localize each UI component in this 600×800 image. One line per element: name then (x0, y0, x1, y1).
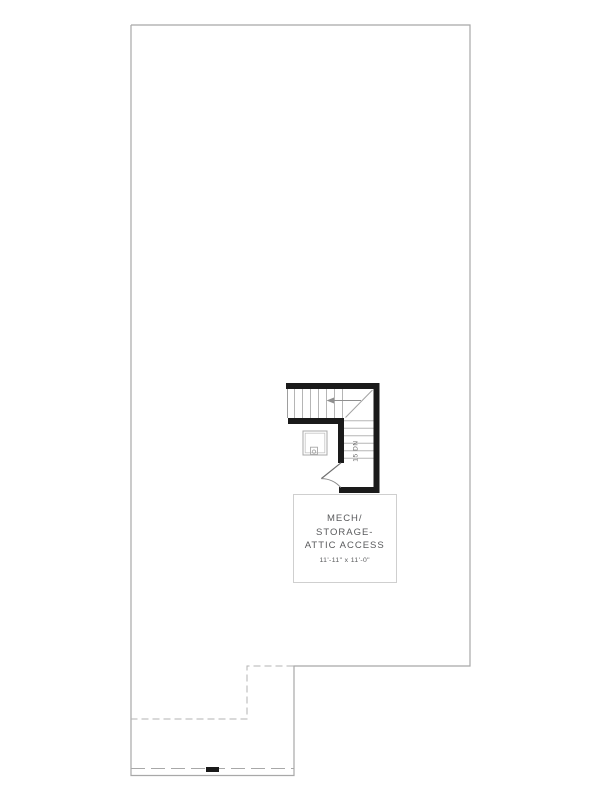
stair-mid-wall (288, 418, 344, 424)
building-outline-dashed (131, 666, 294, 719)
stair-top-wall (286, 383, 380, 389)
mech-room-door (321, 463, 341, 488)
building-outline (131, 25, 470, 776)
stair-arrow-head-icon (327, 398, 335, 404)
room-name-line-1: MECH/ (327, 512, 363, 526)
room-name-line-2: STORAGE- (316, 526, 373, 540)
floor-plan-canvas: 15 DN MECH/ STORAGE- ATTIC ACCESS 11'-11… (0, 0, 600, 800)
stair-bottom-wall (339, 487, 380, 493)
room-dimensions: 11'-11" x 11'-0" (320, 556, 370, 566)
stair-left-wall (338, 418, 344, 463)
stair-direction-markers (327, 390, 373, 418)
door-leaf (321, 463, 341, 479)
door-swing-arc (321, 479, 341, 488)
appliance-symbol (303, 431, 327, 455)
room-label-box: MECH/ STORAGE- ATTIC ACCESS 11'-11" x 11… (293, 494, 398, 583)
stair-upper-run-treads (288, 389, 343, 418)
room-name-line-3: ATTIC ACCESS (305, 539, 385, 553)
stair-right-wall (374, 383, 380, 493)
floor-plan-linework (0, 0, 600, 800)
garage-door-tick (206, 767, 219, 772)
stair-count-annotation: 15 DN (353, 440, 360, 461)
building-outline-solid (131, 25, 470, 776)
stair-break-diagonal (346, 390, 373, 418)
